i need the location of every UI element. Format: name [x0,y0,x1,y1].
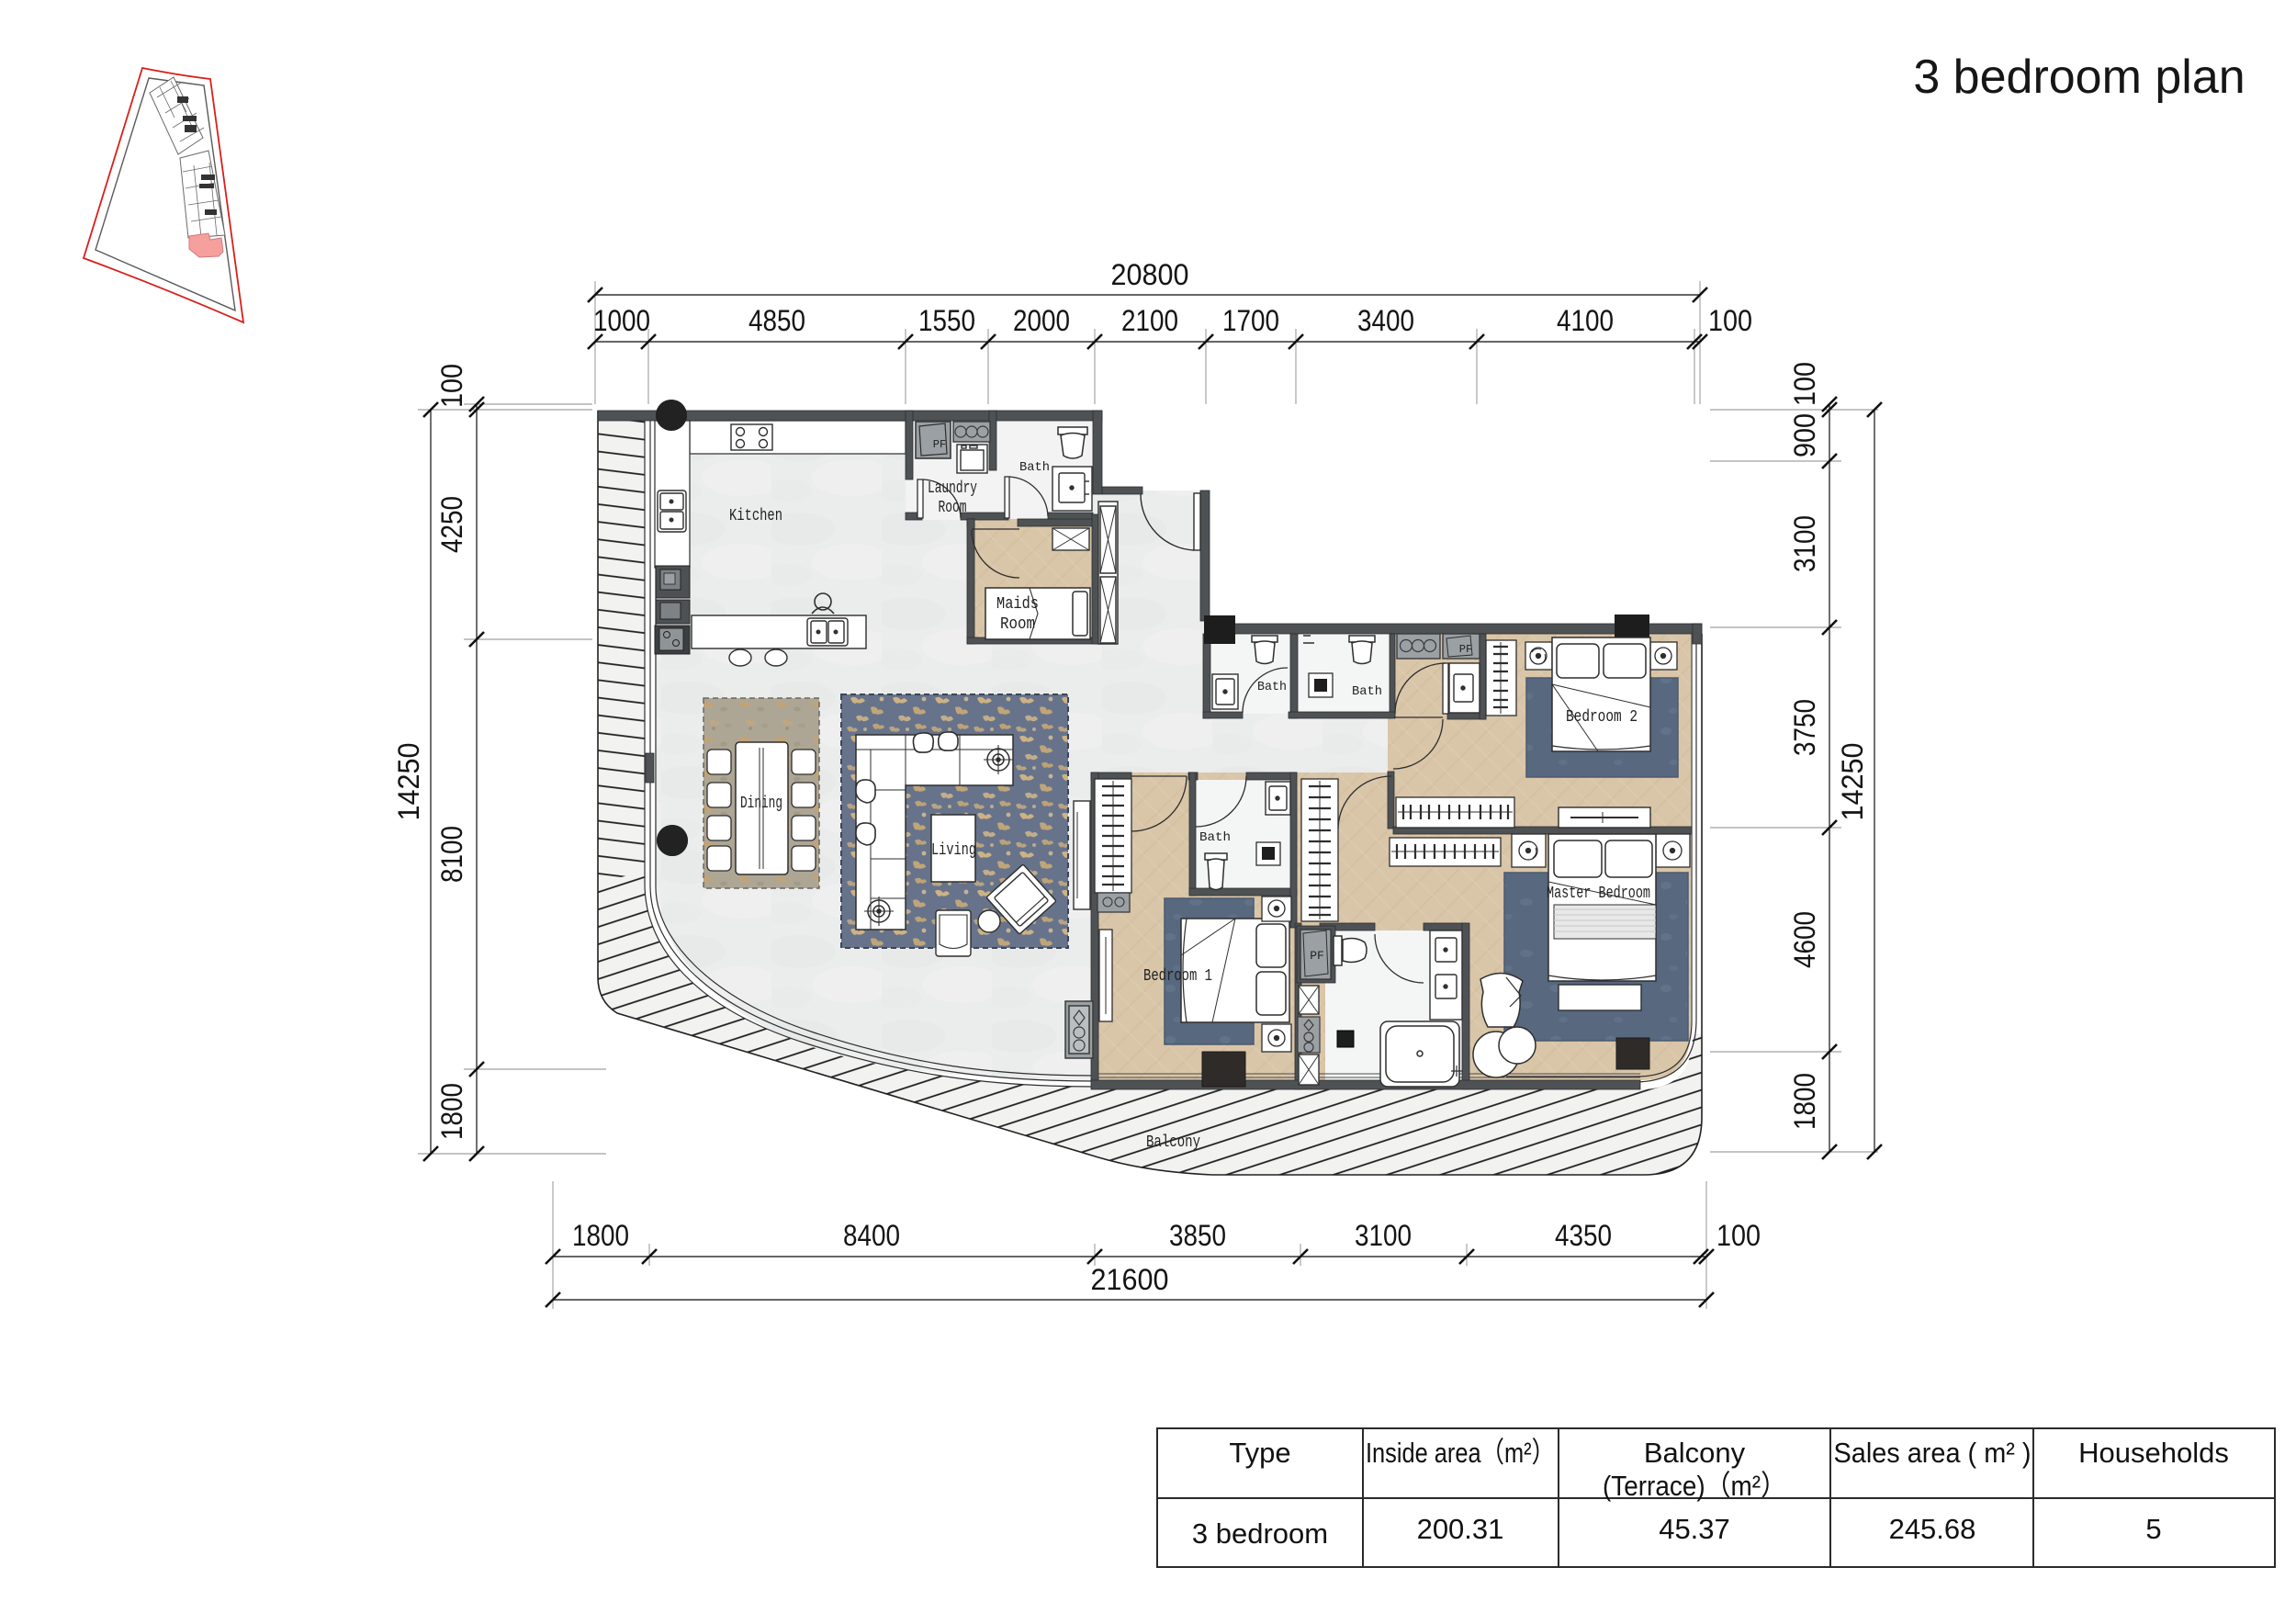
svg-text:Bath: Bath [1019,460,1050,475]
svg-text:1000: 1000 [593,304,650,337]
svg-text:Bedroom 2: Bedroom 2 [1566,708,1638,727]
svg-text:5: 5 [2145,1513,2161,1545]
svg-text:3850: 3850 [1169,1219,1226,1252]
svg-text:4600: 4600 [1788,911,1821,968]
svg-text:Inside area（m²）: Inside area（m²） [1366,1437,1555,1469]
svg-text:PF: PF [1459,643,1472,656]
svg-text:1700: 1700 [1222,304,1279,337]
svg-text:4350: 4350 [1555,1219,1612,1252]
svg-text:8400: 8400 [843,1219,900,1252]
svg-text:3100: 3100 [1355,1219,1412,1252]
svg-text:20800: 20800 [1111,258,1189,291]
svg-text:3750: 3750 [1788,699,1821,756]
svg-text:14250: 14250 [392,743,425,821]
svg-text:8100: 8100 [435,826,468,883]
svg-text:3 bedroom: 3 bedroom [1192,1517,1328,1550]
svg-text:21600: 21600 [1091,1263,1169,1296]
svg-text:1800: 1800 [435,1083,468,1140]
svg-text:4250: 4250 [435,496,468,553]
svg-text:4850: 4850 [748,304,805,337]
svg-text:3100: 3100 [1788,515,1821,572]
svg-text:1800: 1800 [1788,1073,1821,1130]
svg-text:Room: Room [1000,615,1035,634]
svg-text:900: 900 [1788,413,1821,457]
svg-text:100: 100 [1788,362,1821,406]
svg-text:Dining: Dining [740,795,782,813]
svg-text:1800: 1800 [572,1219,629,1252]
svg-text:PF: PF [933,438,946,451]
svg-text:2000: 2000 [1013,304,1070,337]
svg-text:100: 100 [435,364,468,408]
svg-text:245.68: 245.68 [1889,1513,1976,1545]
svg-text:100: 100 [1716,1219,1761,1252]
svg-text:Maids: Maids [996,595,1039,614]
svg-text:Kitchen: Kitchen [729,507,782,525]
svg-text:200.31: 200.31 [1417,1513,1504,1545]
svg-text:Sales area ( m² ): Sales area ( m² ) [1834,1437,2032,1469]
svg-text:100: 100 [1708,304,1752,337]
svg-text:Type: Type [1229,1437,1290,1469]
svg-text:Bath: Bath [1257,680,1287,694]
svg-text:Laundry: Laundry [928,479,977,498]
svg-text:2100: 2100 [1121,304,1178,337]
svg-text:14250: 14250 [1836,743,1869,821]
svg-text:4100: 4100 [1557,304,1614,337]
svg-text:Balcony: Balcony [1146,1133,1200,1152]
svg-text:1550: 1550 [918,304,975,337]
svg-text:Living: Living [931,841,976,860]
svg-text:Room: Room [939,499,967,517]
svg-text:45.37: 45.37 [1659,1513,1730,1545]
svg-text:PF: PF [1310,949,1324,963]
svg-text:Households: Households [2078,1437,2229,1469]
svg-text:3400: 3400 [1357,304,1414,337]
svg-text:(Terrace)（m²）: (Terrace)（m²） [1603,1470,1786,1502]
svg-text:Bath: Bath [1352,684,1382,699]
svg-text:Master Bedroom: Master Bedroom [1547,885,1650,903]
svg-text:3 bedroom plan: 3 bedroom plan [1913,51,2245,104]
svg-text:Bath: Bath [1199,830,1231,845]
svg-text:Bedroom 1: Bedroom 1 [1143,967,1212,986]
svg-text:Balcony: Balcony [1644,1437,1746,1469]
